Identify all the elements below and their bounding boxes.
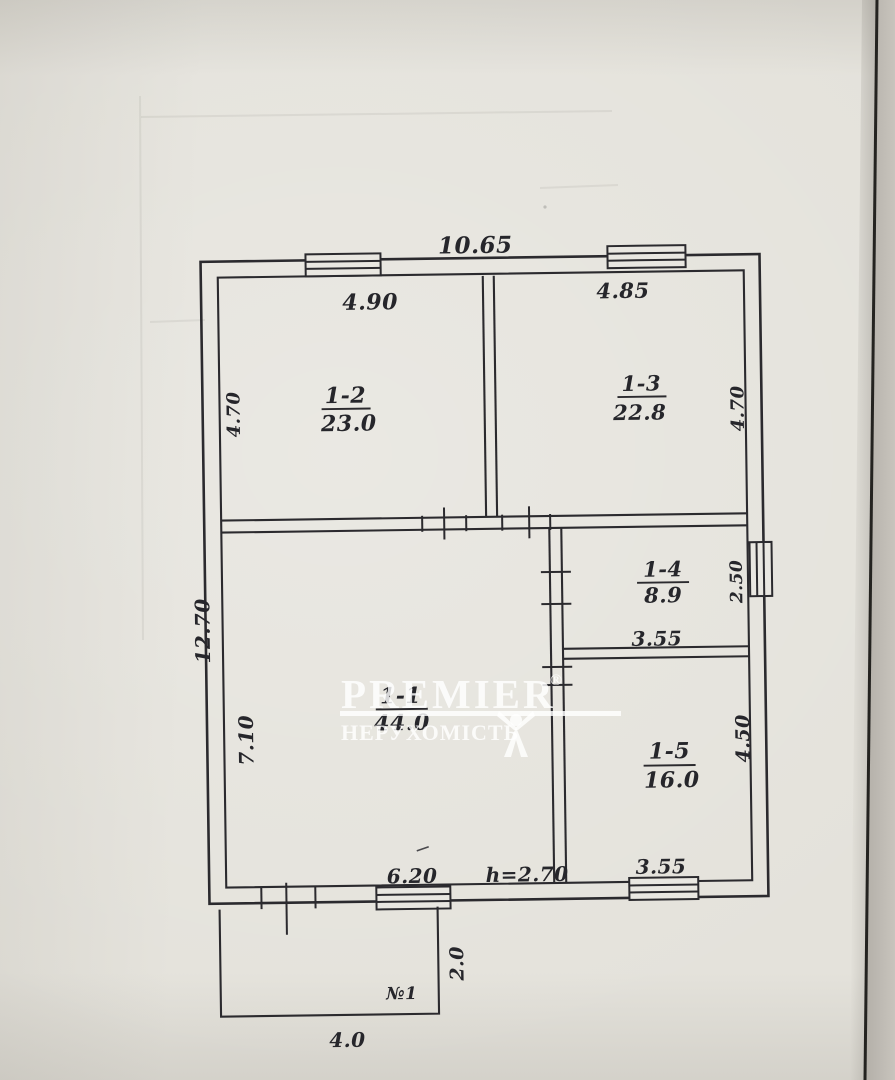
room-1-5-area: 16.0 (644, 767, 700, 794)
room-1-5-id: 1-5 (649, 738, 691, 765)
photographed-floor-plan: 10.65 4.90 4.85 4.70 4.70 12.70 7.10 2.5… (0, 0, 895, 1080)
floor-plan-svg: 10.65 4.90 4.85 4.70 4.70 12.70 7.10 2.5… (0, 0, 895, 1080)
floor-plan: 10.65 4.90 4.85 4.70 4.70 12.70 7.10 2.5… (185, 228, 778, 1054)
dim-room-1-2-height: 4.70 (223, 391, 245, 437)
room-1-4-id: 1-4 (643, 556, 683, 582)
room-1-2-area: 23.0 (320, 410, 377, 437)
premier-watermark: PREMIER ® НЕРУХОМІСТЬ (340, 671, 621, 757)
dim-ceiling-height: h=2.70 (485, 862, 568, 887)
window-room-1-3 (607, 245, 685, 268)
window-room-1-2 (305, 253, 380, 276)
pen-dash (417, 847, 429, 851)
dim-room-1-4-height: 2.50 (727, 560, 748, 605)
window-room-1-5 (629, 877, 698, 900)
dim-overall-height: 12.70 (190, 598, 215, 663)
porch-id: №1 (385, 984, 418, 1004)
watermark-bar (340, 711, 621, 716)
room-1-3-area: 22.8 (612, 399, 667, 425)
dim-room-1-3-width: 4.85 (596, 278, 650, 304)
room-1-3-id: 1-3 (621, 370, 661, 396)
dim-room-1-3-height: 4.70 (727, 385, 749, 431)
windows (305, 244, 776, 910)
bleed-through-marks (140, 96, 618, 640)
window-room-1-4 (749, 542, 772, 596)
dimension-labels: 10.65 4.90 4.85 4.70 4.70 12.70 7.10 2.5… (185, 228, 758, 1054)
dim-room-1-2-width: 4.90 (342, 289, 398, 316)
watermark-registered-icon: ® (550, 672, 562, 689)
dim-porch-width: 4.0 (329, 1028, 366, 1053)
watermark-subtitle: НЕРУХОМІСТЬ (341, 720, 519, 745)
room-1-2-id: 1-2 (325, 383, 367, 410)
dim-room-1-5-width: 3.55 (635, 854, 686, 879)
dim-porch-depth: 2.0 (446, 946, 468, 982)
dim-room-1-1-width: 6.20 (387, 864, 438, 889)
page-edge (850, 0, 895, 1080)
dim-room-1-1-height: 7.10 (234, 715, 259, 766)
dim-overall-width: 10.65 (438, 232, 513, 260)
dim-room-1-5-height: 4.50 (732, 714, 755, 763)
dim-room-1-4-width: 3.55 (631, 626, 682, 651)
window-room-1-1 (376, 886, 450, 909)
watermark-brand: PREMIER (341, 671, 556, 717)
room-1-4-area: 8.9 (643, 582, 682, 608)
